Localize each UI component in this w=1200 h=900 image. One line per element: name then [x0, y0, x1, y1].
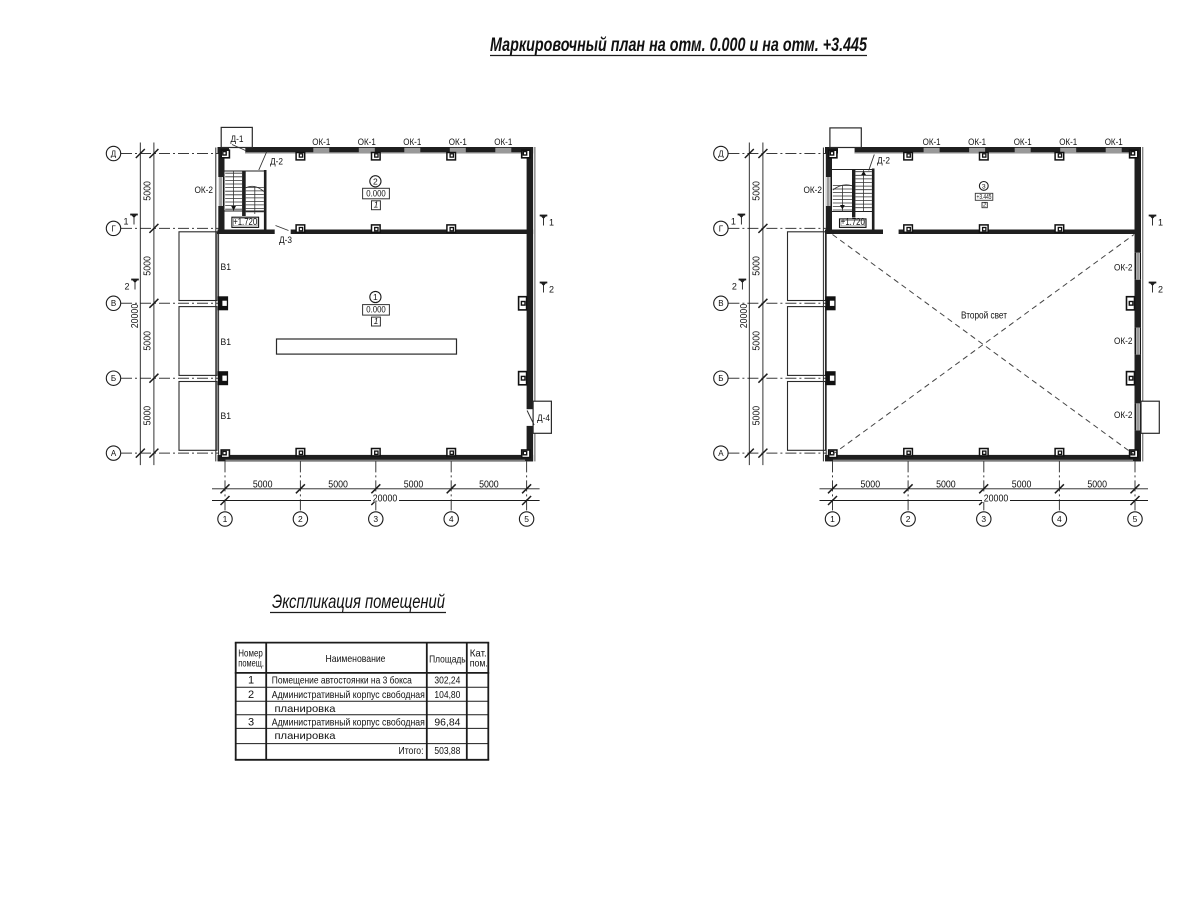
svg-text:ОК-1: ОК-1 — [923, 137, 941, 147]
svg-text:Д-3: Д-3 — [279, 235, 292, 245]
svg-text:5000: 5000 — [328, 479, 348, 490]
svg-text:96,84: 96,84 — [434, 716, 460, 728]
svg-text:5: 5 — [524, 514, 529, 524]
svg-text:2: 2 — [549, 285, 554, 295]
svg-text:пом.: пом. — [470, 657, 488, 669]
svg-text:20000: 20000 — [984, 493, 1009, 504]
svg-text:4: 4 — [1057, 514, 1062, 524]
svg-text:3: 3 — [982, 183, 986, 190]
svg-text:5000: 5000 — [404, 479, 424, 490]
svg-text:ОК-1: ОК-1 — [1105, 137, 1123, 147]
svg-text:ОК-2: ОК-2 — [1114, 410, 1133, 420]
svg-text:5000: 5000 — [1012, 479, 1032, 490]
svg-text:2: 2 — [906, 514, 911, 524]
svg-text:5000: 5000 — [142, 406, 153, 426]
svg-text:ОК-1: ОК-1 — [312, 137, 330, 147]
svg-text:Б: Б — [718, 374, 723, 383]
svg-text:5000: 5000 — [253, 479, 273, 490]
svg-text:В: В — [111, 299, 116, 308]
svg-text:Г: Г — [719, 224, 724, 233]
svg-text:5000: 5000 — [142, 256, 153, 276]
svg-text:ОК-1: ОК-1 — [403, 137, 421, 147]
svg-text:ОК-1: ОК-1 — [358, 137, 376, 147]
svg-text:планировка: планировка — [275, 730, 336, 742]
svg-text:Д: Д — [111, 149, 117, 158]
svg-text:Второй свет: Второй свет — [961, 310, 1007, 322]
svg-text:+3.445: +3.445 — [977, 194, 992, 201]
svg-text:В1: В1 — [221, 262, 232, 272]
svg-text:1: 1 — [248, 675, 254, 687]
svg-text:ОК-2: ОК-2 — [195, 185, 214, 195]
svg-text:В1: В1 — [221, 411, 232, 421]
svg-text:Д-2: Д-2 — [877, 156, 890, 166]
svg-text:1: 1 — [830, 514, 835, 524]
svg-text:+1.720: +1.720 — [233, 217, 257, 228]
svg-text:2: 2 — [248, 689, 254, 701]
svg-text:4: 4 — [449, 514, 454, 524]
svg-text:1: 1 — [374, 316, 379, 326]
svg-text:Д-1: Д-1 — [231, 134, 244, 144]
svg-text:ОК-2: ОК-2 — [1114, 336, 1133, 346]
svg-text:2: 2 — [373, 176, 378, 186]
svg-text:Д: Д — [718, 149, 724, 158]
svg-text:Д-4: Д-4 — [537, 413, 550, 423]
svg-text:ОК-1: ОК-1 — [1014, 137, 1032, 147]
svg-text:20000: 20000 — [130, 304, 141, 329]
svg-text:5000: 5000 — [1087, 479, 1107, 490]
svg-text:5: 5 — [1133, 514, 1138, 524]
svg-text:Помещение автостоянки на 3 бок: Помещение автостоянки на 3 бокса — [272, 675, 412, 687]
svg-text:5000: 5000 — [861, 479, 881, 490]
svg-text:5000: 5000 — [142, 331, 153, 351]
svg-text:1: 1 — [374, 200, 379, 210]
svg-text:503,88: 503,88 — [434, 745, 460, 757]
svg-text:В: В — [718, 299, 723, 308]
svg-text:Д-2: Д-2 — [270, 156, 283, 166]
svg-text:302,24: 302,24 — [434, 675, 460, 687]
svg-text:+1.720: +1.720 — [841, 217, 865, 228]
svg-text:В1: В1 — [221, 337, 232, 347]
svg-text:5000: 5000 — [751, 406, 762, 426]
svg-text:Экспликация помещений: Экспликация помещений — [272, 592, 445, 613]
svg-text:0.000: 0.000 — [366, 305, 386, 315]
svg-text:Наименование: Наименование — [326, 653, 386, 665]
svg-text:ОК-1: ОК-1 — [1059, 137, 1077, 147]
svg-text:20000: 20000 — [373, 493, 398, 504]
svg-text:помещ.: помещ. — [238, 657, 264, 669]
svg-text:3: 3 — [248, 716, 254, 728]
svg-text:А: А — [111, 449, 117, 458]
svg-text:ОК-1: ОК-1 — [968, 137, 986, 147]
svg-text:2: 2 — [124, 282, 129, 292]
svg-text:3: 3 — [373, 514, 378, 524]
svg-text:Административный корпус свобод: Административный корпус свободная — [272, 689, 425, 701]
svg-text:Б: Б — [111, 374, 116, 383]
svg-text:5000: 5000 — [479, 479, 499, 490]
svg-text:0.000: 0.000 — [366, 188, 386, 198]
svg-text:5000: 5000 — [751, 256, 762, 276]
svg-text:1: 1 — [123, 217, 128, 227]
svg-text:А: А — [718, 449, 724, 458]
svg-text:Маркировочный план на отм. 0.0: Маркировочный план на отм. 0.000 и на от… — [490, 35, 867, 56]
svg-text:Итого:: Итого: — [399, 745, 424, 757]
svg-text:Площадь: Площадь — [429, 654, 466, 666]
svg-text:1: 1 — [373, 292, 378, 302]
svg-text:ОК-1: ОК-1 — [494, 137, 512, 147]
svg-text:Административный корпус свобод: Административный корпус свободная — [272, 716, 425, 728]
svg-text:1: 1 — [731, 217, 736, 227]
svg-text:1: 1 — [549, 218, 554, 228]
svg-text:ОК-2: ОК-2 — [1114, 263, 1133, 273]
svg-text:ОК-1: ОК-1 — [449, 137, 467, 147]
svg-text:ОК-2: ОК-2 — [804, 185, 823, 195]
svg-text:5000: 5000 — [936, 479, 956, 490]
svg-text:5000: 5000 — [751, 331, 762, 351]
svg-text:1: 1 — [1158, 218, 1163, 228]
svg-text:20000: 20000 — [739, 304, 750, 329]
svg-text:3: 3 — [981, 514, 986, 524]
svg-text:104,80: 104,80 — [434, 689, 460, 701]
svg-text:2: 2 — [1158, 285, 1163, 295]
svg-text:2: 2 — [982, 203, 986, 209]
svg-text:2: 2 — [732, 282, 737, 292]
svg-text:планировка: планировка — [275, 703, 336, 715]
svg-text:5000: 5000 — [142, 181, 153, 201]
svg-text:5000: 5000 — [751, 181, 762, 201]
svg-text:1: 1 — [223, 514, 228, 524]
svg-text:Г: Г — [111, 224, 116, 233]
svg-text:2: 2 — [298, 514, 303, 524]
